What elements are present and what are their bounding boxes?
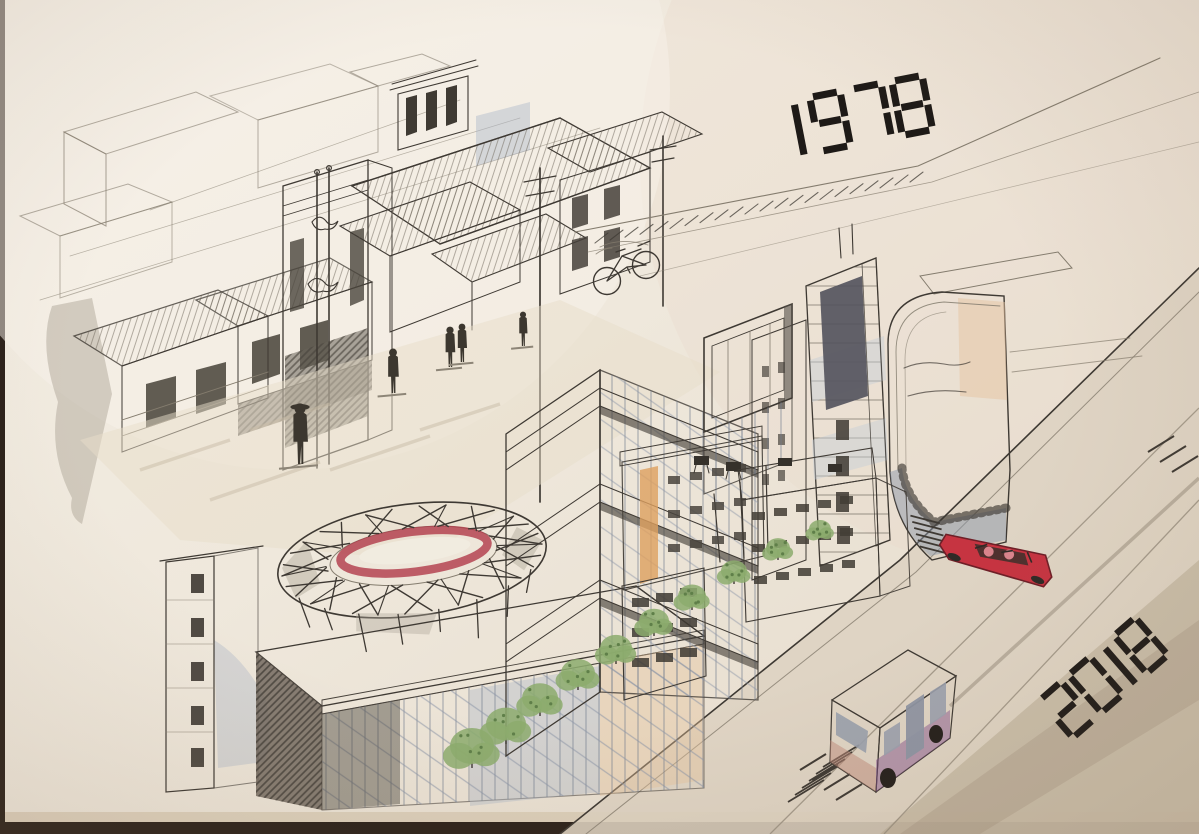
wheel — [880, 768, 896, 788]
wheel — [929, 725, 943, 743]
artwork-photo: Watercolor and ink sketch comparing a 19… — [0, 0, 1199, 834]
dark-core — [820, 276, 868, 410]
sketch-canvas: Watercolor and ink sketch comparing a 19… — [0, 0, 1199, 834]
